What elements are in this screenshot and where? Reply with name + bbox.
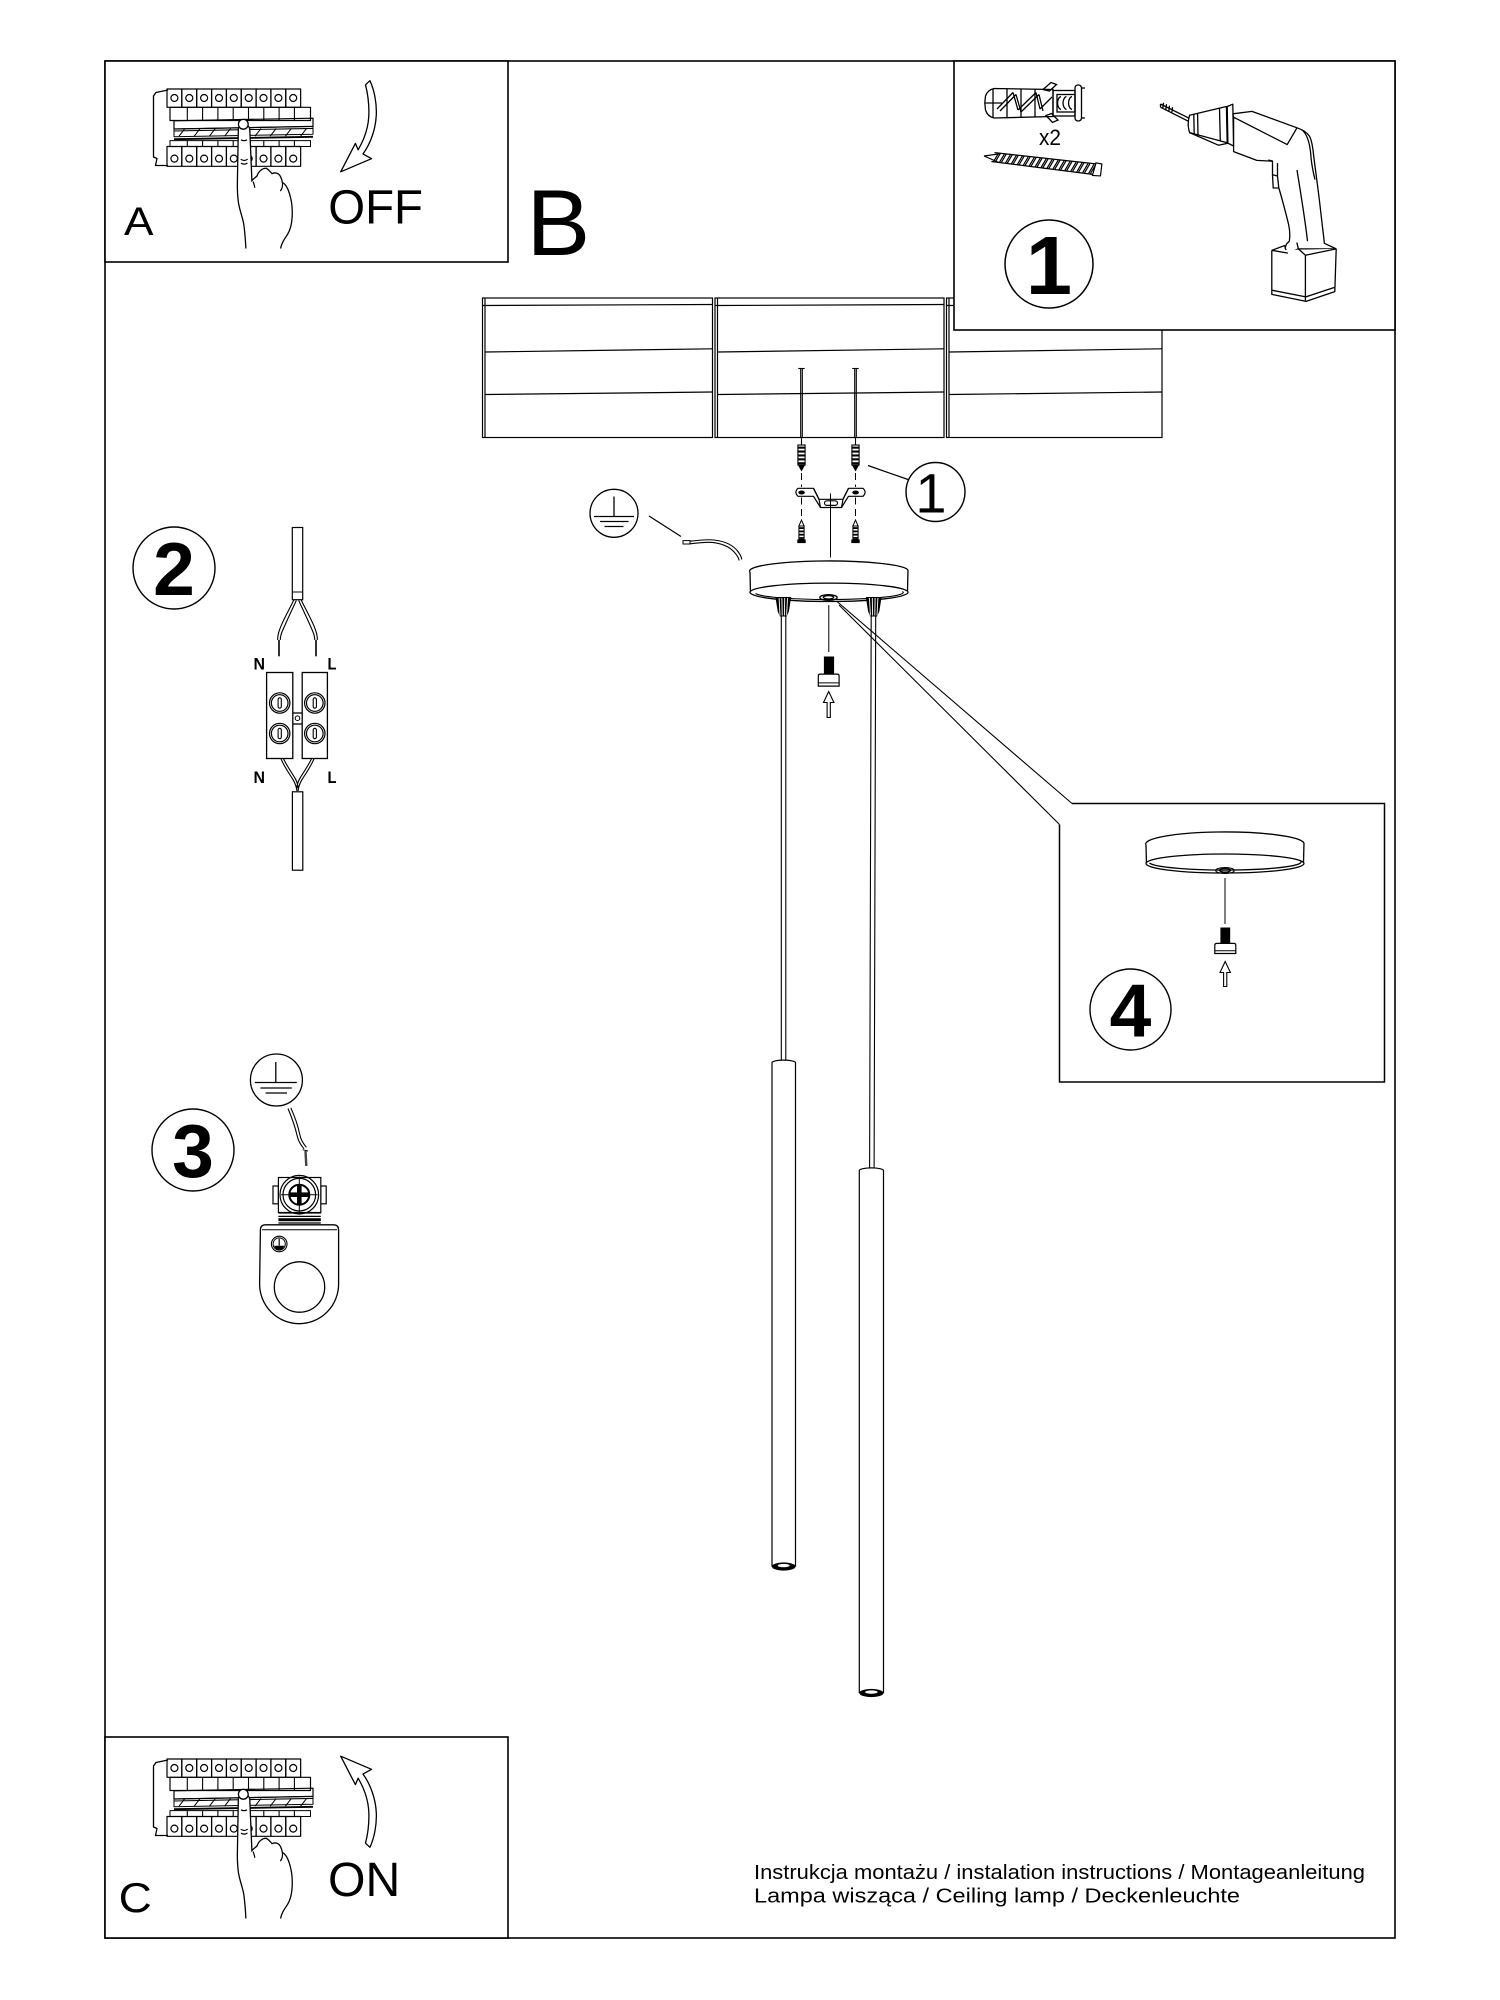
svg-text:1: 1 [915,462,946,525]
svg-text:2: 2 [153,527,195,611]
svg-text:Instrukcja montażu / instalati: Instrukcja montażu / instalation instruc… [754,1861,1365,1884]
svg-text:C: C [119,1874,152,1921]
svg-text:1: 1 [1026,219,1072,312]
svg-text:x2: x2 [1039,125,1061,150]
svg-text:A: A [124,200,154,244]
svg-text:N: N [254,769,266,787]
svg-text:N: N [254,656,266,674]
svg-text:4: 4 [1110,969,1152,1053]
svg-text:Lampa wisząca / Ceiling lamp /: Lampa wisząca / Ceiling lamp / Deckenleu… [754,1885,1240,1908]
svg-text:ON: ON [328,1854,400,1907]
svg-text:L: L [328,769,337,787]
svg-text:OFF: OFF [328,182,423,235]
svg-text:3: 3 [172,1109,214,1193]
svg-text:B: B [527,170,591,275]
svg-text:L: L [328,656,337,674]
